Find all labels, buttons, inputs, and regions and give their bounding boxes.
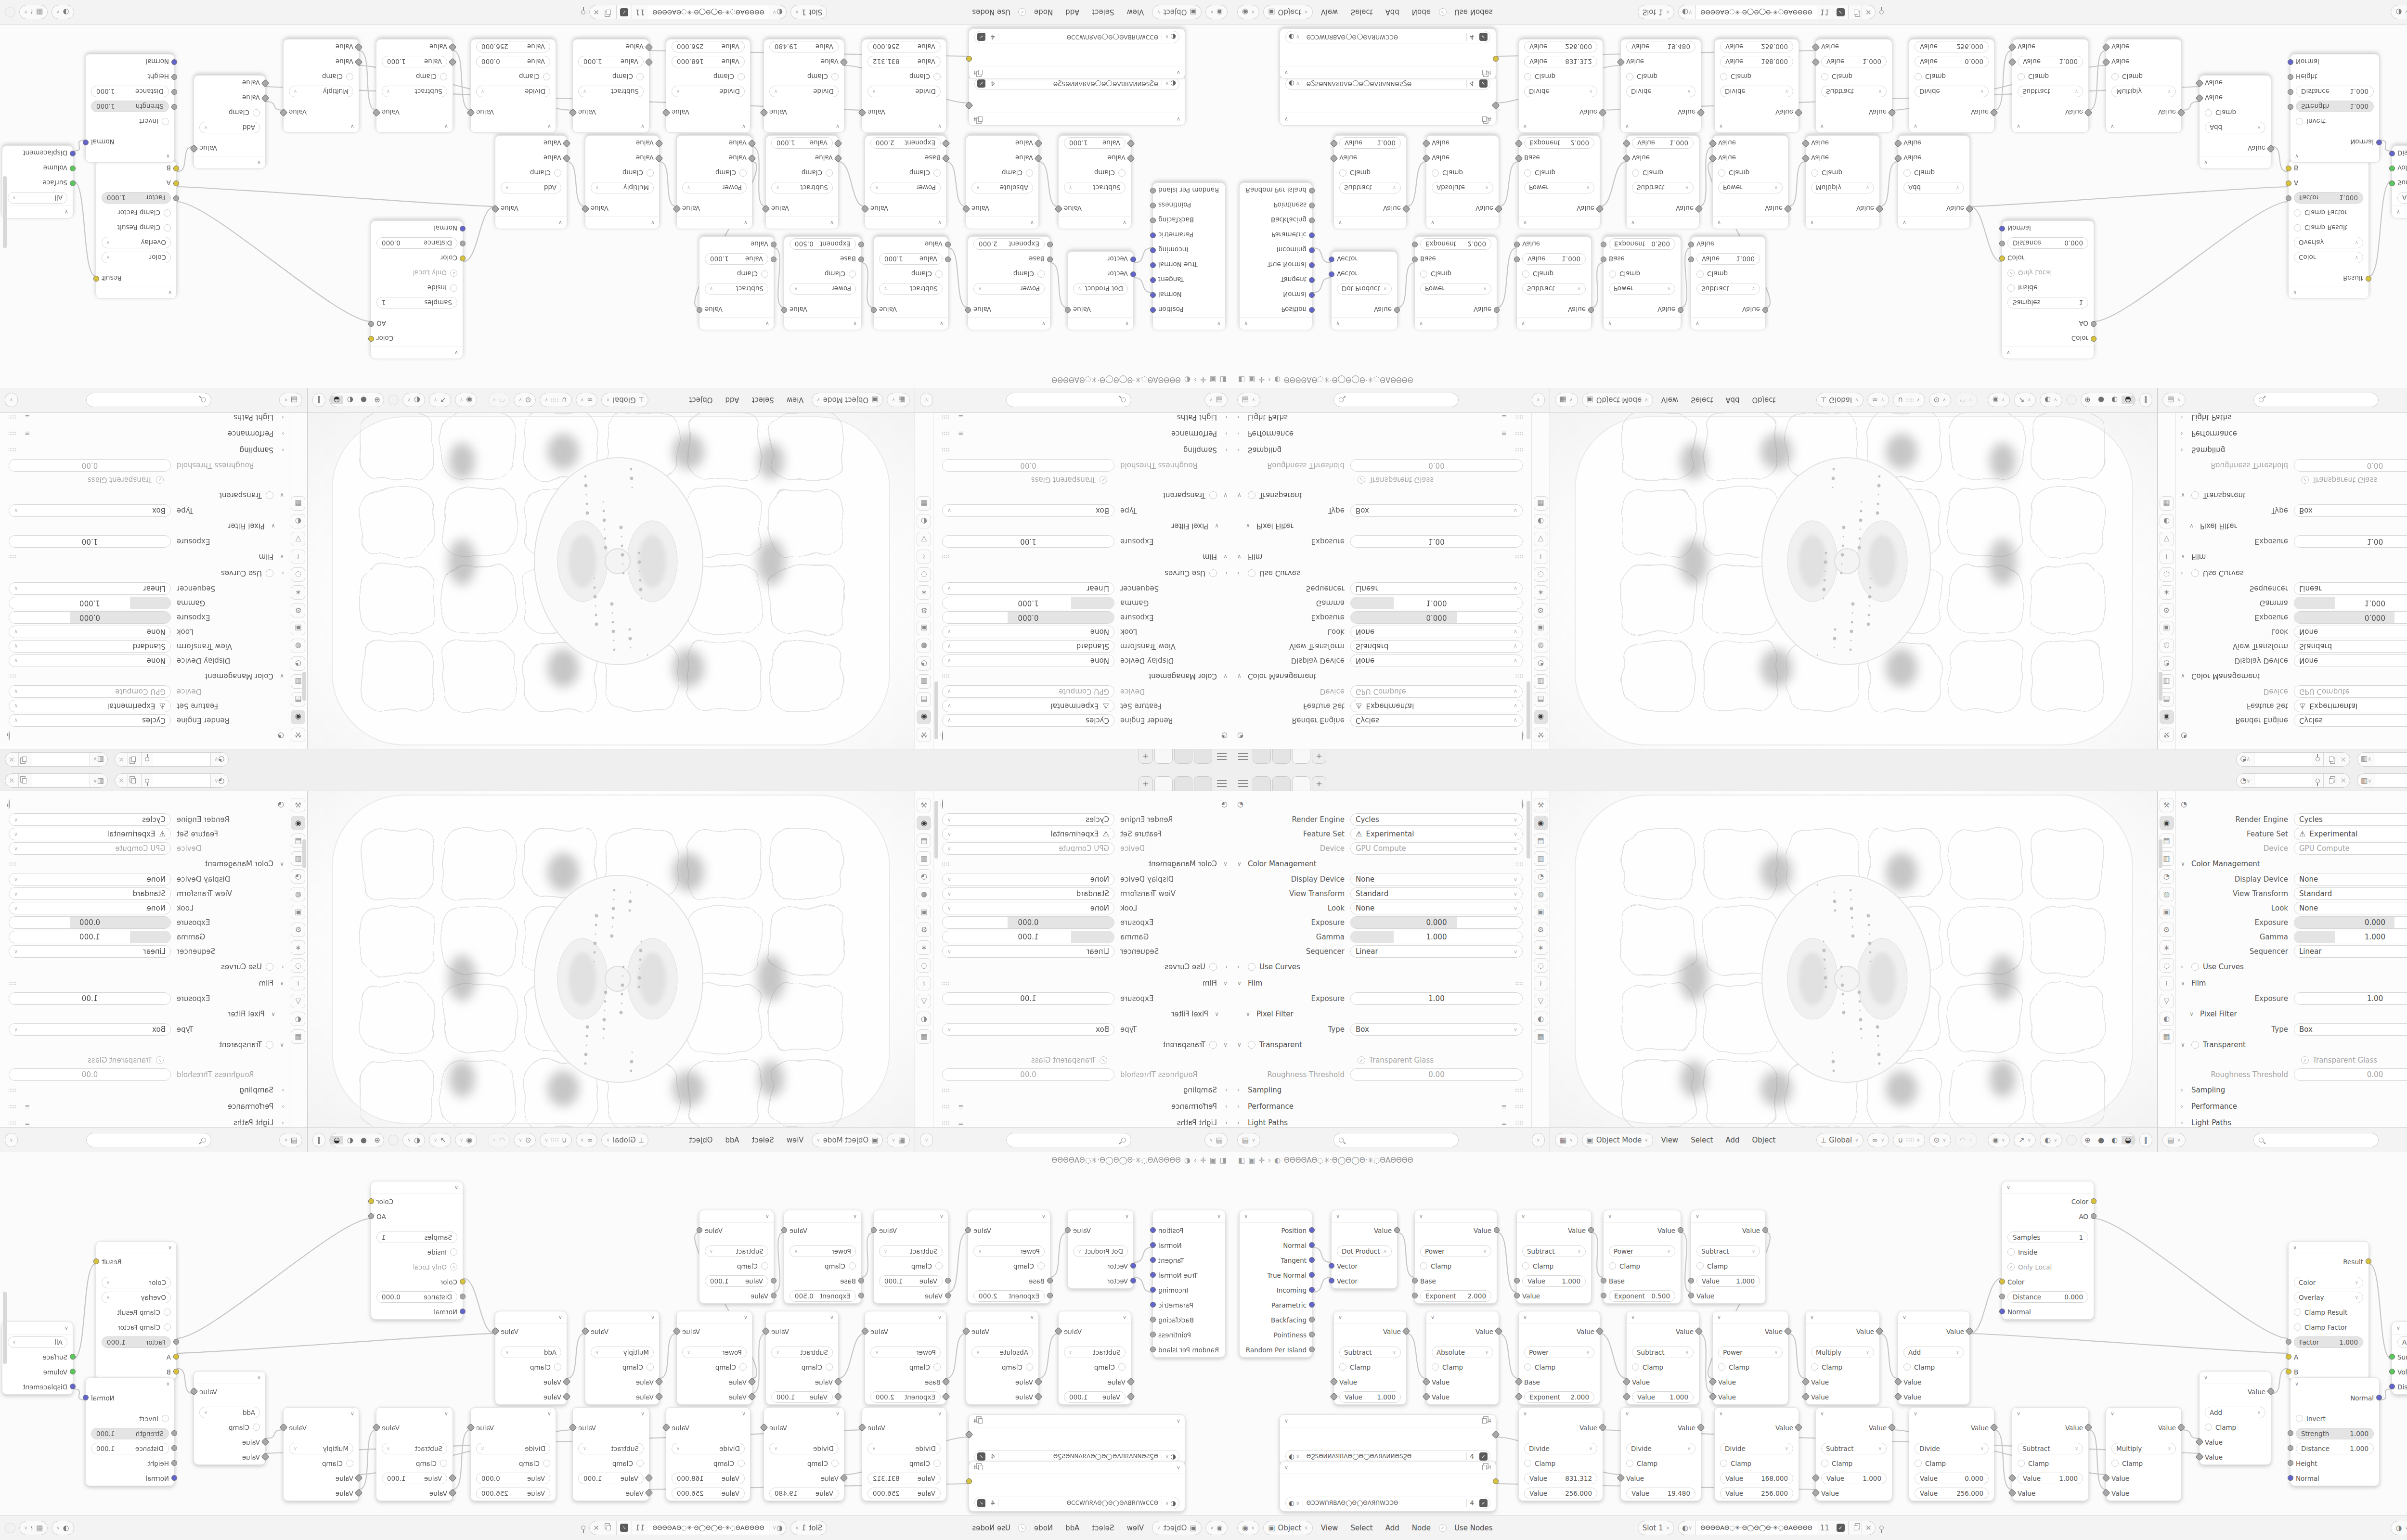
properties-tab-modifiers[interactable]: ⚙ <box>1534 923 1548 937</box>
shader-type-dropdown[interactable]: ▣Object∨ <box>1263 1521 1312 1535</box>
node-collapse-chevron[interactable]: ∨ <box>1909 120 1994 132</box>
node-socket-in[interactable] <box>171 1445 177 1451</box>
node-socket-out[interactable] <box>2091 336 2096 342</box>
node-socket-out[interactable] <box>83 1395 89 1400</box>
menu-select[interactable]: Select <box>1686 1136 1717 1144</box>
node-socket-in[interactable] <box>1047 1278 1053 1283</box>
viewport-3d[interactable]: ▦∨ ▣Object Mode∨ View Select Add Object … <box>307 388 915 749</box>
shader-node-m4[interactable]: ∨ValueSubtract∨ClampValueValue1.000 <box>765 1311 839 1405</box>
node-checkbox[interactable] <box>1524 73 1531 80</box>
snap-magnet-button[interactable]: ∪∨ <box>540 1133 571 1147</box>
node-socket-out[interactable] <box>368 321 374 327</box>
node-socket-in[interactable] <box>1047 1293 1053 1298</box>
shader-node-ao[interactable]: ∨ColorAOSamples1Inside✓Only LocalColorDi… <box>2002 220 2094 359</box>
node-collapse-chevron[interactable]: ∨ <box>865 216 946 229</box>
node-checkbox[interactable] <box>935 1262 943 1270</box>
menu-add[interactable]: Add <box>1061 1524 1084 1532</box>
node-checkbox[interactable]: ✓ <box>450 269 457 277</box>
node-socket-out[interactable] <box>858 109 867 117</box>
node-value-field[interactable]: Samples1 <box>2007 1232 2088 1243</box>
node-checkbox[interactable] <box>543 73 550 80</box>
node-socket-out[interactable] <box>1966 1327 1974 1335</box>
node-collapse-chevron[interactable]: ∨ <box>1898 216 1969 229</box>
node-canvas[interactable]: ◧ ▣ ✛ › ◐ ΘΘΘΘΑΘ◌✳·Θ◯Θ◯Θ·✳◌ΘΑΘΘΘΘ ∨Posit… <box>0 1152 1232 1520</box>
node-collapse-chevron[interactable]: ∨ <box>1898 1311 1969 1324</box>
copy-icon[interactable] <box>2329 778 2333 783</box>
dropdown-render-engine[interactable]: Cycles∨ <box>2294 813 2407 826</box>
shading-solid[interactable]: ● <box>2095 1136 2108 1144</box>
node-checkbox[interactable] <box>162 1415 169 1422</box>
node-socket-in[interactable] <box>1330 1378 1338 1386</box>
properties-tab-tool[interactable]: ⚒ <box>917 798 932 812</box>
node-socket-in[interactable] <box>1802 1378 1810 1386</box>
view-layer-selector[interactable]: ▥∨ ✕ <box>5 773 108 788</box>
node-socket-out[interactable] <box>1695 1327 1703 1335</box>
node-socket-in[interactable] <box>1894 1393 1902 1401</box>
editor-type-button[interactable]: ▤∨ <box>2162 393 2186 408</box>
shader-node-m5[interactable]: ∨ValuePower∨ClampValueValue <box>676 135 752 229</box>
scrollbar[interactable] <box>2159 672 2162 701</box>
menu-node[interactable]: Node <box>1030 1524 1057 1532</box>
node-socket-out[interactable] <box>2084 109 2093 117</box>
node-socket-out[interactable] <box>467 109 475 117</box>
node-operation-select[interactable]: Subtract∨ <box>879 283 943 295</box>
dropdown-view-transform[interactable]: Standard∨ <box>9 887 171 900</box>
node-socket-in[interactable] <box>2196 1438 2204 1446</box>
node-socket-in[interactable] <box>1802 154 1810 163</box>
dropdown-view-transform[interactable]: Standard∨ <box>1350 887 1523 900</box>
node-value-field[interactable]: Value168.000 <box>672 1473 745 1484</box>
snapping-group-button[interactable]: ▦≀∨ <box>19 5 48 20</box>
filter-dropdown[interactable]: ∨ <box>5 1133 18 1147</box>
node-checkbox[interactable] <box>1118 169 1126 177</box>
node-socket-in[interactable] <box>1127 154 1135 163</box>
properties-tab-modifiers[interactable]: ⚙ <box>291 603 306 617</box>
node-socket-out[interactable] <box>1394 1227 1400 1233</box>
value-field-exposure[interactable]: 1.00 <box>2294 992 2407 1005</box>
properties-tab-world[interactable]: ◍ <box>1534 887 1548 901</box>
node-socket-in[interactable] <box>171 104 177 110</box>
node-checkbox[interactable] <box>647 1363 654 1371</box>
node-checkbox[interactable] <box>1037 1262 1045 1270</box>
dropdown-view-transform[interactable]: Standard∨ <box>2294 640 2407 653</box>
node-socket-out[interactable] <box>1697 1424 1705 1432</box>
node-collapse-chevron[interactable]: ∨ <box>371 346 463 359</box>
node-socket-in[interactable] <box>2389 1384 2395 1389</box>
node-socket-out[interactable] <box>492 1327 500 1335</box>
node-collapse-chevron[interactable]: ∨ <box>2 205 73 218</box>
node-socket-in[interactable] <box>748 154 756 163</box>
node-value-field[interactable]: Value1.000 <box>578 56 644 68</box>
node-socket-out[interactable] <box>1309 1227 1315 1233</box>
node-socket-in[interactable] <box>2389 180 2395 186</box>
material-name-field[interactable]: ΘΘΘΘΑΘ◌✳·Θ◯Θ◯Θ·✳◌ΘΑΘΘΘΘ <box>648 6 769 19</box>
properties-tab-data[interactable]: ▽ <box>1534 532 1548 546</box>
shader-node-a2[interactable]: ∨ValueAdd∨ClampValueValue <box>2199 1371 2271 1465</box>
node-socket-out[interactable] <box>1309 1347 1315 1352</box>
node-operation-select[interactable]: Subtract∨ <box>1696 1245 1760 1257</box>
node-collapse-chevron[interactable]: ∨ <box>1519 216 1600 229</box>
dropdown-render-engine[interactable]: Cycles∨ <box>942 813 1114 826</box>
node-collapse-chevron[interactable]: ∨ <box>1517 1210 1591 1223</box>
properties-search-input[interactable] <box>2253 393 2379 408</box>
node-socket-out[interactable] <box>1990 1424 1998 1432</box>
properties-search-input[interactable] <box>1333 393 1459 408</box>
node-socket-out[interactable] <box>1309 188 1315 193</box>
node-value-field[interactable]: Exponent0.500 <box>1609 239 1675 250</box>
node-socket-in[interactable] <box>1617 1474 1625 1482</box>
node-collapse-chevron[interactable]: ∨ <box>1806 216 1879 229</box>
node-socket-out[interactable] <box>373 109 381 117</box>
properties-tab-output[interactable]: ▤ <box>917 692 932 706</box>
checkbox-transparent-glass[interactable]: ✓ <box>156 476 164 484</box>
sidebar-toggle-icon[interactable]: ◧ <box>1238 1156 1245 1165</box>
node-collapse-chevron[interactable]: ∨ <box>2289 286 2368 298</box>
section-checkbox[interactable] <box>1209 569 1217 577</box>
shader-node-bump[interactable]: ∨NormalInvertStrength1.000Distance1.000H… <box>2290 1377 2380 1486</box>
node-socket-out[interactable] <box>1309 1302 1315 1308</box>
scrollbar[interactable] <box>1527 681 1530 739</box>
section-header-film[interactable]: ∨Film <box>2181 549 2407 565</box>
dropdown-display-device[interactable]: None∨ <box>942 654 1114 667</box>
properties-tab-physics[interactable]: ◌ <box>291 567 306 582</box>
node-operation-select[interactable]: Power∨ <box>973 283 1045 295</box>
node-operation-select[interactable]: Subtract∨ <box>382 1443 447 1454</box>
node-operation-select[interactable]: Multiply∨ <box>591 1347 654 1358</box>
node-checkbox[interactable] <box>739 169 747 177</box>
node-value-field[interactable]: Value19.480 <box>1626 41 1695 53</box>
section-header-transparent[interactable]: ∨Transparent <box>9 487 284 503</box>
node-socket-out[interactable] <box>1784 205 1792 213</box>
node-socket-in[interactable] <box>2008 58 2017 66</box>
node-socket-in[interactable] <box>2286 1369 2291 1374</box>
node-socket-in[interactable] <box>1330 1393 1338 1401</box>
shader-node-m3[interactable]: ∨ValuePower∨ClampBaseExponent2.000 <box>1518 1311 1600 1405</box>
slider-gamma[interactable]: 1.000 <box>2294 597 2407 609</box>
node-value-field[interactable]: Value1.000 <box>578 1473 644 1484</box>
node-socket-in[interactable] <box>355 43 363 51</box>
node-collapse-chevron[interactable]: ∨4 <box>1280 1462 1496 1474</box>
node-socket-out[interactable] <box>697 1227 702 1233</box>
slider-gamma[interactable]: 1.000 <box>1350 931 1523 943</box>
proportional-falloff-button[interactable]: ◠∨ <box>1955 393 1977 408</box>
properties-tab-tool[interactable]: ⚒ <box>1534 798 1548 812</box>
node-socket-in[interactable] <box>449 58 457 66</box>
node-value-field[interactable]: Value168.000 <box>1720 1473 1793 1484</box>
node-value-field[interactable]: Value19.480 <box>1626 1488 1695 1499</box>
node-operation-select[interactable]: Dot Product∨ <box>1073 283 1128 295</box>
node-operation-select[interactable]: Divide∨ <box>769 1443 839 1454</box>
shader-node-g1[interactable]: ∨PositionNormalTangentTrue NormalIncomin… <box>1152 182 1226 330</box>
value-field-exposure[interactable]: 1.00 <box>9 992 171 1005</box>
menu-object[interactable]: Object <box>685 1136 717 1144</box>
scene-name-field[interactable] <box>153 774 210 787</box>
workspace-tab[interactable] <box>1253 776 1271 791</box>
node-socket-out[interactable] <box>1888 1424 1896 1432</box>
properties-search-input[interactable] <box>1006 1133 1131 1147</box>
view-layer-name-field[interactable] <box>32 753 90 766</box>
node-collapse-chevron[interactable]: ∨ <box>1627 216 1699 229</box>
node-checkbox[interactable] <box>1626 1460 1633 1467</box>
dropdown-feature-set[interactable]: ⚠Experimental∨ <box>2294 828 2407 840</box>
node-collapse-chevron[interactable]: ∨ <box>1806 1311 1879 1324</box>
node-socket-in[interactable] <box>460 1294 466 1299</box>
node-socket-in[interactable] <box>355 1489 363 1497</box>
show-overlays-button[interactable]: ↗∨ <box>2014 1133 2036 1147</box>
slider-gamma[interactable]: 1.000 <box>1350 597 1523 609</box>
node-collapse-chevron[interactable]: ∨ <box>874 317 948 330</box>
properties-tab-modifiers[interactable]: ⚙ <box>917 603 932 617</box>
node-checkbox[interactable] <box>1609 1262 1616 1270</box>
section-header-color-management[interactable]: ∨Color Management <box>9 856 284 872</box>
dropdown-view-transform[interactable]: Standard∨ <box>2294 887 2407 900</box>
shader-node-n2[interactable]: ∨ValueDot Product∨VectorVector <box>1067 1210 1134 1289</box>
slider-gamma[interactable]: 1.000 <box>9 597 171 609</box>
shader-node-n6[interactable]: ∨ValueSubtract∨ClampValue1.000Value <box>699 236 774 330</box>
unlink-icon[interactable]: ✕ <box>115 753 128 766</box>
node-collapse-chevron[interactable]: ∨ <box>96 1242 176 1254</box>
dropdown-look[interactable]: None∨ <box>9 626 171 638</box>
node-socket-out[interactable] <box>582 1327 590 1335</box>
section-header-pixel-filter[interactable]: ∨Pixel Filter <box>9 518 284 534</box>
menu-object[interactable]: Object <box>1747 396 1780 405</box>
properties-tab-render[interactable]: ◉ <box>2160 816 2174 830</box>
node-socket-in[interactable] <box>1130 1263 1136 1269</box>
node-collapse-chevron[interactable]: ∨ <box>1715 120 1799 132</box>
preview-sphere-button[interactable]: ◑∨ <box>52 1521 74 1535</box>
node-socket-out[interactable] <box>2177 1424 2186 1432</box>
node-operation-select[interactable]: Add∨ <box>199 122 260 134</box>
filter-dropdown[interactable]: ∨ <box>1532 393 1545 408</box>
node-value-field[interactable]: Factor1.000 <box>2294 1336 2363 1348</box>
show-gizmo-button[interactable]: ◉∨ <box>455 1133 477 1147</box>
node-socket-in[interactable] <box>1999 1309 2005 1314</box>
show-gizmo-button[interactable]: ◉∨ <box>455 393 477 408</box>
material-name-field[interactable]: ΘΘΘΘΑΘ◌✳·Θ◯Θ◯Θ·✳◌ΘΑΘΘΘΘ <box>1696 1521 1817 1535</box>
properties-tab-scene[interactable]: ◔ <box>2160 869 2174 884</box>
node-checkbox[interactable] <box>2205 109 2212 116</box>
node-checkbox[interactable] <box>543 1460 550 1467</box>
node-checkbox[interactable] <box>2294 1323 2301 1331</box>
properties-tab-physics[interactable]: ◌ <box>1534 958 1548 973</box>
node-value-field[interactable]: Value1.000 <box>382 56 447 68</box>
node-operation-select[interactable]: Subtract∨ <box>1632 1347 1694 1358</box>
properties-search-input[interactable] <box>1006 393 1131 408</box>
properties-tab-texture[interactable]: ▦ <box>291 1029 306 1044</box>
properties-tab-material[interactable]: ◐ <box>917 514 932 528</box>
node-collapse-chevron[interactable]: ∨ <box>284 120 359 132</box>
node-checkbox[interactable] <box>440 73 447 80</box>
node-socket-in[interactable] <box>1127 1378 1135 1386</box>
node-socket-out[interactable] <box>368 1198 374 1204</box>
shader-node-d2[interactable]: ∨ValueDivide∨ClampValueValue19.480 <box>764 1407 844 1501</box>
node-socket-out[interactable] <box>569 1424 577 1432</box>
shader-node-d3[interactable]: ∨ValueDivide∨ClampValue168.000Value256.0… <box>1714 39 1799 133</box>
show-overlays-button[interactable]: ↗∨ <box>429 393 451 408</box>
node-collapse-chevron[interactable]: ∨ <box>1334 1311 1406 1324</box>
node-collapse-chevron[interactable]: ∨ <box>784 1210 861 1223</box>
preview-sphere-button[interactable]: ◑∨ <box>2391 1521 2407 1535</box>
node-collapse-chevron[interactable]: ∨ <box>1240 1210 1312 1223</box>
node-collapse-chevron[interactable]: ∨ <box>573 1408 649 1420</box>
shader-node-mix[interactable]: ∨ResultColor∨Overlay∨Clamp ResultClamp F… <box>96 1241 177 1380</box>
node-value-field[interactable]: Exponent2.000 <box>973 1290 1045 1302</box>
menu-select[interactable]: Select <box>1346 1524 1377 1532</box>
section-header-pixel-filter[interactable]: ∨Pixel Filter <box>9 1006 284 1022</box>
slider-exposure[interactable]: 0.000 <box>942 611 1114 624</box>
node-socket-in[interactable] <box>945 242 951 247</box>
slider-gamma[interactable]: 1.000 <box>9 931 171 943</box>
checkbox-transparent-glass[interactable]: ✓ <box>2301 476 2309 484</box>
node-collapse-chevron[interactable]: ∨ <box>96 286 176 298</box>
node-checkbox[interactable] <box>1915 73 1922 80</box>
node-socket-in[interactable] <box>355 58 363 66</box>
node-value-field[interactable]: Value831.312 <box>867 1473 941 1484</box>
node-socket-in[interactable] <box>1709 154 1717 163</box>
menu-object[interactable]: Object <box>1747 1136 1780 1144</box>
material-slot-dropdown[interactable]: Slot 1∨ <box>1638 5 1674 20</box>
material-user-count[interactable]: 11 <box>632 6 648 19</box>
dropdown-display-device[interactable]: None∨ <box>9 654 171 667</box>
node-checkbox[interactable] <box>2294 209 2301 217</box>
shader-node-s1[interactable]: ∨ValueSubtract∨ClampValue1.000Value <box>1815 39 1892 133</box>
pin-icon[interactable] <box>1522 731 1523 741</box>
dropdown-sequencer[interactable]: Linear∨ <box>9 582 171 595</box>
properties-tab-texture[interactable]: ▦ <box>1534 1029 1548 1044</box>
filter-dropdown[interactable]: ∨ <box>5 393 18 408</box>
slider-exposure[interactable]: 0.000 <box>1350 916 1523 929</box>
node-operation-select[interactable]: Multiply∨ <box>591 182 654 194</box>
node-checkbox[interactable] <box>647 169 654 177</box>
pin-icon[interactable] <box>1879 10 1884 14</box>
node-socket-in[interactable] <box>2286 166 2291 171</box>
value-field-roughness-threshold[interactable]: 0.00 <box>1350 1068 1523 1081</box>
section-header-sampling[interactable]: ›Sampling <box>9 1082 284 1098</box>
node-operation-select[interactable]: Power∨ <box>1524 182 1594 194</box>
node-collapse-chevron[interactable]: ∨ <box>1153 1210 1225 1223</box>
node-operation-select[interactable]: Multiply∨ <box>1811 182 1874 194</box>
node-socket-out[interactable] <box>1795 1424 1803 1432</box>
overlay-toggle[interactable] <box>5 7 15 18</box>
view-layer-name-field[interactable] <box>2375 753 2407 766</box>
section-header-use-curves[interactable]: ›Use Curves <box>1237 565 1523 581</box>
menu-view[interactable]: View <box>1657 1136 1683 1144</box>
node-socket-out[interactable] <box>2091 1198 2096 1204</box>
node-socket-in[interactable] <box>858 1293 864 1298</box>
app-menu-icon[interactable] <box>1217 780 1227 787</box>
properties-tab-render[interactable]: ◉ <box>917 816 932 830</box>
node-value-field[interactable]: Value0.000 <box>476 1473 550 1484</box>
node-value-field[interactable]: Value1.000 <box>1522 254 1586 265</box>
menu-view[interactable]: View <box>1657 396 1683 405</box>
shader-node-m2[interactable]: ∨ValueAbsolute∨ClampValueValue <box>1426 1311 1499 1405</box>
node-socket-in[interactable] <box>460 1279 466 1284</box>
material-browse-button[interactable]: ◐∨ <box>769 6 786 19</box>
node-socket-in[interactable] <box>771 1278 776 1283</box>
section-header-sampling[interactable]: ›Sampling <box>9 442 284 458</box>
shader-node-d1[interactable]: ∨ValueDivide∨ClampValue831.312Value256.0… <box>862 39 946 133</box>
shader-node-d1[interactable]: ∨ValueDivide∨ClampValue831.312Value256.0… <box>862 1407 946 1501</box>
node-operation-select[interactable]: Subtract∨ <box>1339 1347 1401 1358</box>
node-collapse-chevron[interactable]: ∨ <box>968 1210 1050 1223</box>
section-checkbox[interactable] <box>1248 1041 1255 1049</box>
node-socket-in[interactable] <box>1423 140 1431 148</box>
node-socket-out[interactable] <box>871 1227 877 1233</box>
node-socket-in[interactable] <box>645 58 653 66</box>
new-material-copy-icon[interactable] <box>607 1525 611 1530</box>
node-value-field[interactable]: Value1.000 <box>1339 138 1401 149</box>
section-header-performance[interactable]: ›Performance≡ <box>2181 1098 2407 1115</box>
node-socket-in[interactable] <box>942 1393 950 1401</box>
node-collapse-chevron[interactable]: ∨ <box>764 1408 844 1420</box>
slider-exposure[interactable]: 0.000 <box>2294 611 2407 624</box>
node-socket-out[interactable] <box>1402 205 1411 213</box>
shader-node-n2[interactable]: ∨ValueDot Product∨VectorVector <box>1067 251 1134 330</box>
node-operation-select[interactable]: Power∨ <box>870 1347 941 1358</box>
node-socket-out[interactable] <box>871 307 877 313</box>
section-header-color-management[interactable]: ∨Color Management <box>1237 856 1523 872</box>
node-socket-in[interactable] <box>945 257 951 262</box>
node-socket-out[interactable] <box>1150 1287 1156 1293</box>
properties-tab-output[interactable]: ▤ <box>1534 834 1548 848</box>
value-field-roughness-threshold[interactable]: 0.00 <box>2294 459 2407 472</box>
properties-tab-physics[interactable]: ◌ <box>917 567 932 582</box>
node-value-field[interactable]: Strength1.000 <box>2296 101 2374 113</box>
material-browse-button[interactable]: ◐∨ <box>1679 6 1696 19</box>
section-header-sampling[interactable]: ›Sampling <box>1237 1082 1523 1098</box>
shader-node-s1[interactable]: ∨ValueSubtract∨ClampValue1.000Value <box>1815 1407 1892 1501</box>
sidebar-toggle-icon[interactable]: ◧ <box>1220 375 1227 384</box>
value-field-exposure[interactable]: 1.00 <box>1350 535 1523 548</box>
section-header-pixel-filter[interactable]: ∨Pixel Filter <box>1237 518 1523 534</box>
value-field-exposure[interactable]: 1.00 <box>2294 535 2407 548</box>
section-header-film[interactable]: ∨Film <box>942 549 1228 565</box>
menu-select[interactable]: Select <box>748 396 778 405</box>
node-socket-in[interactable] <box>1999 226 2005 231</box>
node-checkbox[interactable] <box>450 284 457 292</box>
node-socket-in[interactable] <box>1412 1278 1418 1283</box>
node-value-field[interactable]: Value1.000 <box>1821 56 1887 68</box>
editor-type-button[interactable]: ▦∨ <box>1555 393 1578 408</box>
node-socket-out[interactable] <box>2366 1258 2371 1264</box>
properties-tab-modifiers[interactable]: ⚙ <box>2160 603 2174 617</box>
section-header-light-paths[interactable]: ›Light Paths≡ <box>2181 1115 2407 1127</box>
editor-type-button[interactable]: ▤∨ <box>1237 1133 1260 1147</box>
node-collapse-chevron[interactable]: ∨ <box>1240 317 1312 330</box>
properties-tab-material[interactable]: ◐ <box>1534 514 1548 528</box>
node-operation-select[interactable]: Divide∨ <box>1915 86 1989 98</box>
shader-node-s2[interactable]: ∨ValueSubtract∨ClampValue1.000Value <box>376 39 453 133</box>
workspace-tab[interactable] <box>1253 749 1271 764</box>
node-operation-select[interactable]: Multiply∨ <box>2111 1443 2176 1454</box>
node-socket-out[interactable] <box>965 1227 971 1233</box>
checkbox-transparent-glass[interactable]: ✓ <box>1358 476 1365 484</box>
viewport-3d[interactable]: ▦∨ ▣Object Mode∨ View Select Add Object … <box>1550 791 2158 1152</box>
sidebar-toggle-icon[interactable]: ◧ <box>1220 1156 1227 1165</box>
node-socket-in[interactable] <box>2288 74 2293 80</box>
node-value-field[interactable]: Samples1 <box>2007 297 2088 309</box>
menu-view[interactable]: View <box>782 396 808 405</box>
node-socket-in[interactable] <box>771 242 776 247</box>
node-value-field[interactable]: Strength1.000 <box>2296 1428 2374 1439</box>
fake-user-shield-icon[interactable]: ✓ <box>1837 1524 1845 1532</box>
shader-node-d1[interactable]: ∨ValueDivide∨ClampValue831.312Value256.0… <box>1518 1407 1603 1501</box>
menu-select[interactable]: Select <box>748 1136 778 1144</box>
properties-tab-data[interactable]: ▽ <box>2160 532 2174 546</box>
section-header-transparent[interactable]: ∨Transparent <box>942 1037 1228 1053</box>
scene-name-field[interactable] <box>153 753 210 766</box>
node-operation-select[interactable]: Subtract∨ <box>879 1245 943 1257</box>
